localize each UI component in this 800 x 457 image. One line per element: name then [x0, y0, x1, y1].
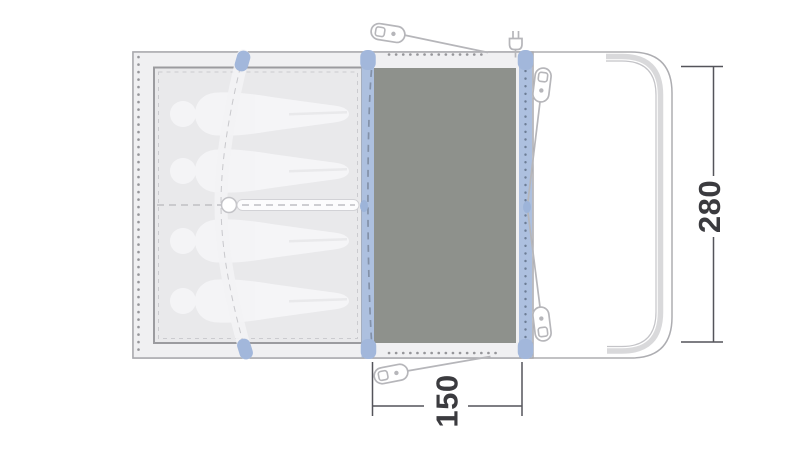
- dimension-height: 280: [681, 67, 727, 343]
- divider-attach-point: [360, 200, 368, 212]
- dimension-height-label: 280: [692, 180, 727, 233]
- peg-icon: [532, 306, 552, 342]
- tent-floorplan-diagram: 280 150: [0, 0, 800, 457]
- peg-icon: [532, 67, 552, 103]
- divider-ring: [222, 198, 237, 213]
- floorplan-canvas: 280 150: [0, 0, 800, 457]
- groundsheet-panel: [374, 68, 516, 343]
- peg-icon: [370, 22, 406, 43]
- guy-attach-point: [523, 201, 531, 213]
- dimension-width-label: 150: [430, 374, 465, 427]
- peg-icon: [373, 363, 409, 385]
